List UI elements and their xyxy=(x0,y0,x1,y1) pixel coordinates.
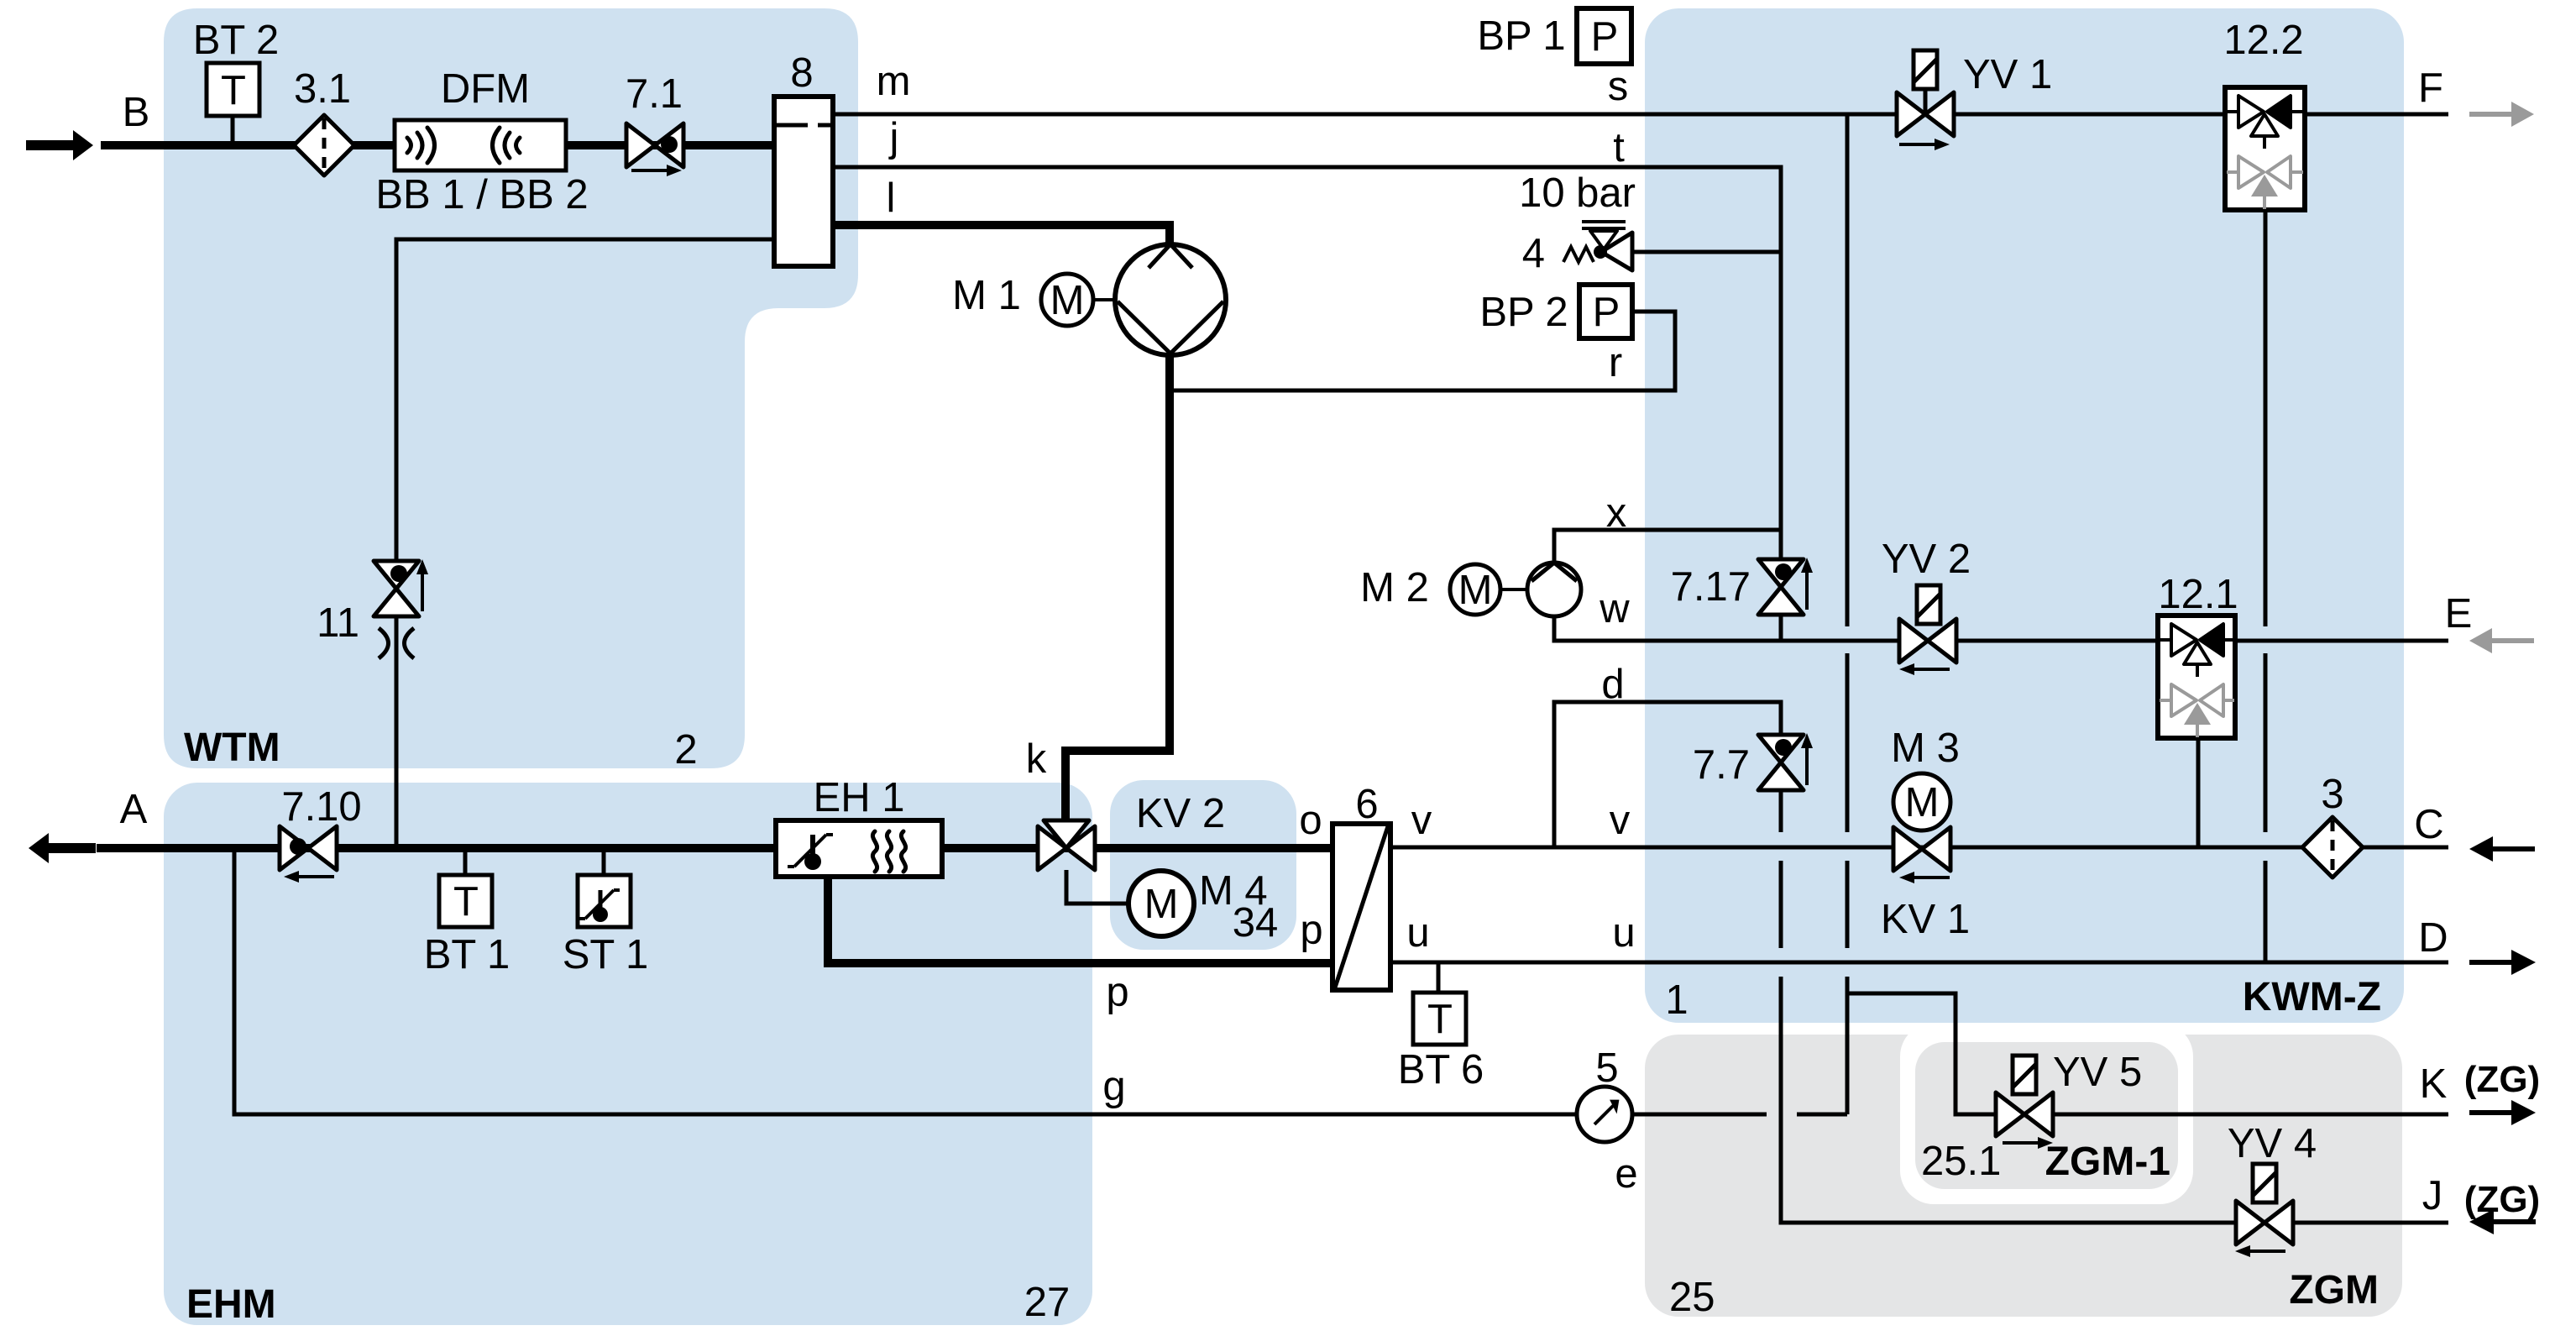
svg-text:6: 6 xyxy=(1355,782,1378,827)
svg-text:r: r xyxy=(1609,340,1622,385)
svg-text:1: 1 xyxy=(1665,977,1688,1023)
svg-text:7.10: 7.10 xyxy=(281,784,361,830)
svg-text:EH 1: EH 1 xyxy=(814,775,905,820)
svg-text:M 1: M 1 xyxy=(952,273,1021,318)
svg-text:T: T xyxy=(1427,997,1453,1042)
svg-text:m: m xyxy=(877,59,911,104)
svg-text:M: M xyxy=(1144,882,1179,927)
svg-text:BT 1: BT 1 xyxy=(424,932,510,977)
svg-text:27: 27 xyxy=(1024,1280,1071,1325)
svg-text:BP 2: BP 2 xyxy=(1479,290,1568,335)
svg-text:P: P xyxy=(1591,14,1619,60)
svg-text:2: 2 xyxy=(674,727,697,773)
svg-text:KWM-Z: KWM-Z xyxy=(2243,975,2381,1019)
svg-text:BT 2: BT 2 xyxy=(193,18,280,63)
svg-text:(ZG): (ZG) xyxy=(2464,1179,2540,1220)
svg-text:5: 5 xyxy=(1595,1045,1618,1091)
svg-text:KV 2: KV 2 xyxy=(1136,791,1225,836)
svg-text:YV 1: YV 1 xyxy=(1963,52,2052,97)
svg-text:YV 2: YV 2 xyxy=(1882,537,1971,582)
svg-text:7.1: 7.1 xyxy=(626,71,683,117)
svg-text:(ZG): (ZG) xyxy=(2464,1059,2540,1100)
svg-text:YV 5: YV 5 xyxy=(2053,1050,2142,1095)
svg-text:B: B xyxy=(123,90,150,135)
svg-text:u: u xyxy=(1406,910,1429,956)
svg-text:12.1: 12.1 xyxy=(2158,572,2238,617)
svg-text:J: J xyxy=(2422,1173,2443,1218)
svg-text:l: l xyxy=(887,176,896,221)
svg-text:E: E xyxy=(2445,591,2473,637)
svg-text:7.17: 7.17 xyxy=(1671,564,1751,610)
svg-text:34: 34 xyxy=(1233,900,1279,946)
svg-text:v: v xyxy=(1411,798,1432,843)
svg-text:w: w xyxy=(1599,586,1630,631)
svg-text:M: M xyxy=(1905,780,1940,825)
svg-text:M: M xyxy=(1050,278,1085,323)
svg-text:8: 8 xyxy=(790,50,813,96)
svg-text:DFM: DFM xyxy=(441,66,530,112)
svg-text:F: F xyxy=(2418,65,2443,111)
svg-text:BB 1 / BB 2: BB 1 / BB 2 xyxy=(375,172,588,217)
svg-text:ST 1: ST 1 xyxy=(563,932,649,977)
svg-text:T: T xyxy=(453,879,479,925)
svg-text:KV 1: KV 1 xyxy=(1881,897,1970,942)
svg-text:WTM: WTM xyxy=(184,726,280,770)
svg-text:M: M xyxy=(1458,568,1493,613)
svg-text:11: 11 xyxy=(317,600,359,646)
svg-text:e: e xyxy=(1615,1151,1637,1197)
svg-text:BT 6: BT 6 xyxy=(1398,1047,1484,1092)
svg-text:4: 4 xyxy=(1522,231,1545,276)
svg-text:12.2: 12.2 xyxy=(2223,18,2303,63)
svg-text:v: v xyxy=(1610,798,1631,843)
svg-text:K: K xyxy=(2420,1061,2448,1107)
svg-text:x: x xyxy=(1606,490,1627,536)
svg-text:M 2: M 2 xyxy=(1360,565,1429,610)
svg-text:A: A xyxy=(120,787,148,832)
svg-text:D: D xyxy=(2418,915,2448,961)
svg-text:YV 4: YV 4 xyxy=(2228,1121,2317,1166)
svg-text:g: g xyxy=(1102,1064,1125,1109)
svg-text:3.1: 3.1 xyxy=(294,66,351,112)
svg-text:7.7: 7.7 xyxy=(1693,742,1750,788)
svg-text:BP 1: BP 1 xyxy=(1477,13,1565,59)
svg-text:M 3: M 3 xyxy=(1891,726,1960,771)
svg-text:ZGM: ZGM xyxy=(2289,1268,2379,1312)
svg-text:T: T xyxy=(221,68,246,113)
svg-text:o: o xyxy=(1299,798,1322,843)
svg-text:k: k xyxy=(1026,736,1047,782)
svg-text:3: 3 xyxy=(2321,772,2343,817)
svg-text:ZGM-1: ZGM-1 xyxy=(2045,1140,2170,1184)
svg-text:C: C xyxy=(2414,802,2443,847)
svg-text:p: p xyxy=(1106,970,1128,1015)
svg-text:d: d xyxy=(1601,662,1624,707)
svg-text:j: j xyxy=(888,115,899,160)
svg-text:t: t xyxy=(1613,125,1625,170)
svg-text:s: s xyxy=(1608,64,1629,109)
svg-text:EHM: EHM xyxy=(186,1282,276,1327)
svg-text:u: u xyxy=(1612,910,1635,956)
svg-text:P: P xyxy=(1593,290,1620,335)
svg-text:10 bar: 10 bar xyxy=(1519,170,1636,216)
svg-text:25.1: 25.1 xyxy=(1921,1139,2001,1184)
svg-text:p: p xyxy=(1300,908,1322,953)
svg-text:25: 25 xyxy=(1669,1275,1715,1320)
